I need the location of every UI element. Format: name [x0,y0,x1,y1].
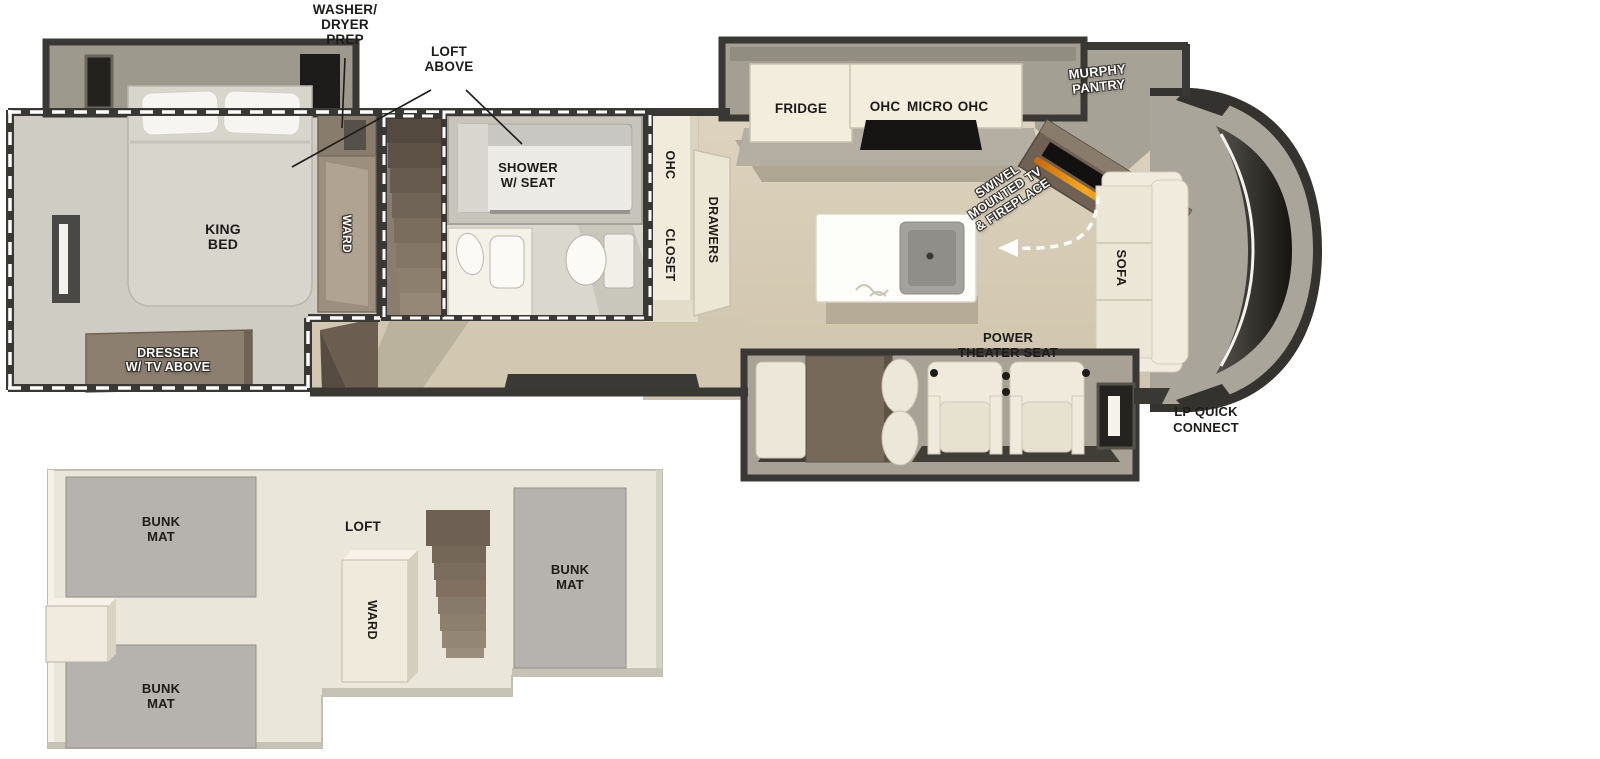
shower-label: SHOWER W/ SEAT [468,160,588,190]
power-theater-seat-label: POWER THEATER SEAT [938,330,1078,360]
island-faucet [927,253,934,260]
bedroom-window-glass [59,224,68,294]
dinette-table [806,356,892,462]
king-bed [128,86,312,306]
sofa-back [1150,180,1188,364]
washer-dryer-prep-label: WASHER/ DRYER PREP [300,2,390,47]
micro-label: MICRO [904,99,956,114]
cooktop [860,120,982,150]
ohc-closet-label: OHC [663,142,677,188]
kitchen-island [816,214,976,302]
washer-dryer-cabinet [318,114,376,156]
closet-label: CLOSET [663,228,677,282]
overhead-cabinets [850,64,1022,128]
dinette-bench-right [882,359,918,413]
bunk-mat-bottom-label: BUNK MAT [116,681,206,711]
dresser-label: DRESSER W/ TV ABOVE [92,346,244,374]
loft-label: LOFT [330,519,396,534]
bunk-mat-right-label: BUNK MAT [525,562,615,592]
theater-seat-2 [1010,362,1084,454]
loft-above-label: LOFT ABOVE [408,44,490,74]
king-bed-label: KING BED [180,222,266,252]
cupholder [1002,388,1010,396]
entry-step-mat [504,374,700,390]
cupholder [1002,372,1010,380]
drawers-label: DRAWERS [706,195,720,265]
ohc-left-label: OHC [862,99,908,114]
bunk-mat-top-label: BUNK MAT [116,514,206,544]
cupholder [930,369,938,377]
ward-bedroom-label: WARD [340,209,354,259]
loft-ward-cabinet [342,550,418,682]
floorplan-canvas: WASHER/ DRYER PREP LOFT ABOVE KING BED D… [0,0,1600,759]
cupholder [1082,369,1090,377]
fridge-label: FRIDGE [756,101,846,116]
sofa-label: SOFA [1115,233,1129,303]
vanity-sink [448,228,532,316]
dinette-bench-left [756,362,806,458]
bedroom-slide-window [86,56,112,108]
theater-slide [744,352,1136,478]
ward-loft-label: WARD [365,585,379,655]
ohc-right-label: OHC [950,99,996,114]
sofa [1096,172,1188,372]
lp-quick-connect-label: LP QUICK CONNECT [1164,404,1248,436]
loft-step-cube [46,598,116,662]
theater-seat-1 [928,362,1002,454]
